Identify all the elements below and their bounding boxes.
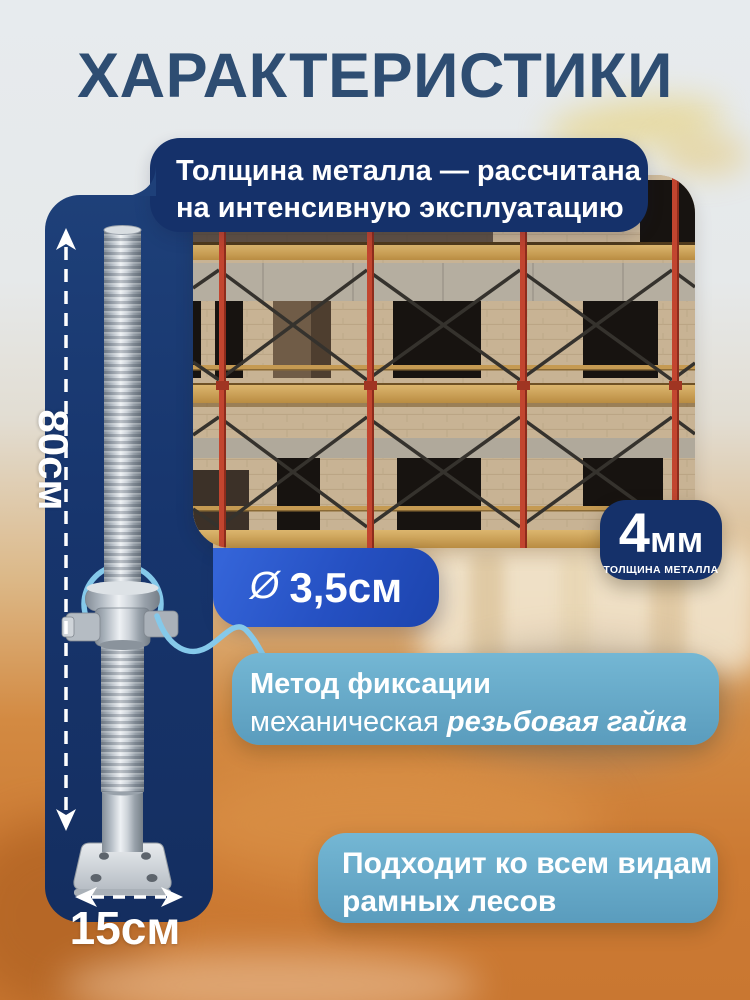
compatibility-line2: рамных лесов xyxy=(342,883,718,921)
fixation-line2-emphasis: резьбовая гайка xyxy=(447,706,687,738)
diameter-value: 3,5см xyxy=(289,564,402,612)
fixation-line1: Метод фиксации xyxy=(250,665,719,703)
fixation-line2: механическая резьбовая гайка xyxy=(250,703,719,741)
product-panel xyxy=(45,195,213,922)
thickness-note-callout: Толщина металла — рассчитана на интенсив… xyxy=(150,138,648,232)
fixation-line2-prefix: механическая xyxy=(250,706,447,738)
diameter-symbol: Ø xyxy=(250,565,280,608)
page-title: ХАРАКТЕРИСТИКИ xyxy=(0,40,750,112)
thickness-badge: 4 мм ТОЛЩИНА МЕТАЛЛА xyxy=(600,500,722,580)
compatibility-line1: Подходит ко всем видам xyxy=(342,845,718,883)
infographic-page: ХАРАКТЕРИСТИКИ xyxy=(0,0,750,1000)
thickness-note-line1: Толщина металла — рассчитана xyxy=(176,153,648,190)
thickness-badge-caption: ТОЛЩИНА МЕТАЛЛА xyxy=(603,564,718,576)
base-width-dimension-label: 15см xyxy=(60,901,190,955)
thickness-badge-value: 4 xyxy=(619,505,650,561)
height-dimension-label: 80см xyxy=(29,400,77,520)
thickness-badge-unit: мм xyxy=(650,522,703,558)
fixation-note: Метод фиксации механическая резьбовая га… xyxy=(232,653,719,745)
diameter-callout: Ø 3,5см xyxy=(213,548,439,627)
concrete-beam xyxy=(193,263,695,301)
blurred-building-column xyxy=(560,552,590,667)
blurred-building-column xyxy=(470,552,504,667)
blurred-ground-blob xyxy=(60,950,480,1000)
thickness-note-line2: на интенсивную эксплуатацию xyxy=(176,190,648,227)
compatibility-note: Подходит ко всем видам рамных лесов xyxy=(318,833,718,923)
blurred-crane-blob xyxy=(660,135,750,175)
